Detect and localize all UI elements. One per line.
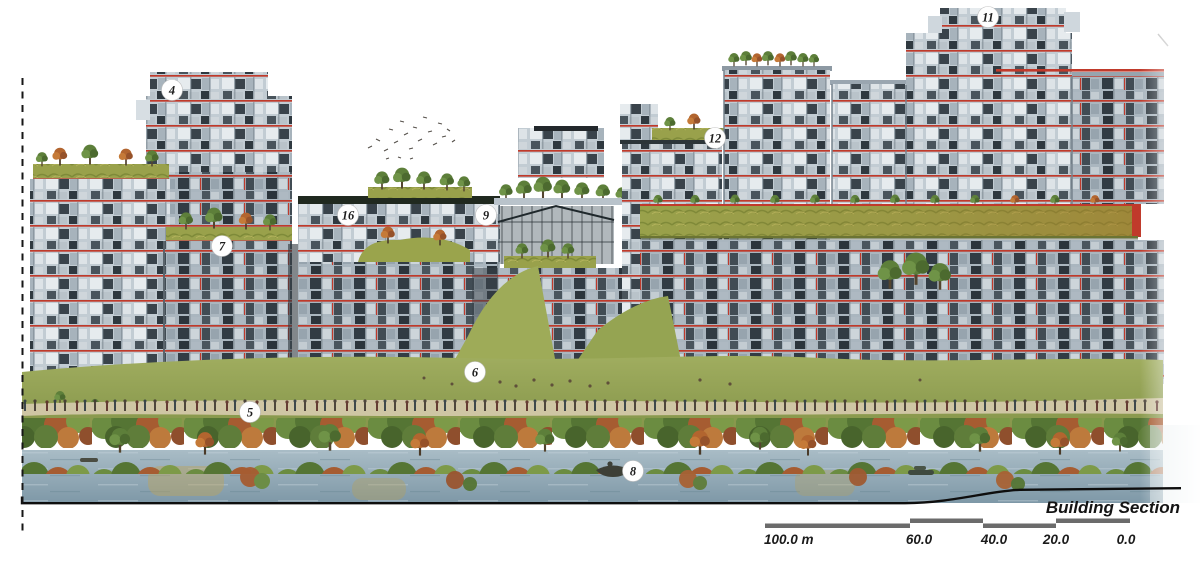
small-boat: [80, 458, 98, 462]
callout-marker-7: 7: [212, 236, 233, 257]
callout-marker-8: 8: [623, 461, 644, 482]
callout-marker-6: 6: [465, 362, 486, 383]
callout-marker-11: 11: [978, 7, 999, 28]
svg-text:100.0 m: 100.0 m: [764, 532, 814, 547]
reed-patch: [352, 478, 406, 500]
svg-text:5: 5: [247, 405, 253, 419]
callout-marker-12: 12: [705, 128, 726, 149]
svg-text:4: 4: [168, 83, 175, 97]
svg-text:20.0: 20.0: [1042, 532, 1070, 547]
right-fade: [1140, 0, 1200, 512]
svg-text:8: 8: [630, 464, 637, 478]
svg-text:16: 16: [342, 208, 355, 222]
boat-canopy: [914, 466, 926, 470]
boat-figure: [607, 461, 612, 466]
svg-text:11: 11: [982, 10, 994, 24]
svg-text:9: 9: [483, 208, 490, 222]
callout-marker-16: 16: [338, 205, 359, 226]
building-section-drawing: 4 7 16 9 12 11 6 5 8 Building Section 10…: [0, 0, 1200, 586]
building-section-label: Building Section: [1046, 498, 1180, 517]
svg-text:40.0: 40.0: [980, 532, 1008, 547]
svg-text:12: 12: [709, 131, 722, 145]
svg-text:7: 7: [219, 239, 226, 253]
small-boat: [908, 470, 934, 475]
svg-text:0.0: 0.0: [1117, 532, 1136, 547]
svg-text:6: 6: [472, 365, 479, 379]
greenhouse-structure: [498, 206, 614, 264]
svg-text:60.0: 60.0: [906, 532, 933, 547]
callout-marker-5: 5: [240, 402, 261, 423]
pedestrians: [22, 394, 1163, 416]
section-scene: 4 7 16 9 12 11 6 5 8 Building Section 10…: [0, 0, 1200, 586]
callout-marker-9: 9: [476, 205, 497, 226]
callout-marker-4: 4: [162, 80, 183, 101]
